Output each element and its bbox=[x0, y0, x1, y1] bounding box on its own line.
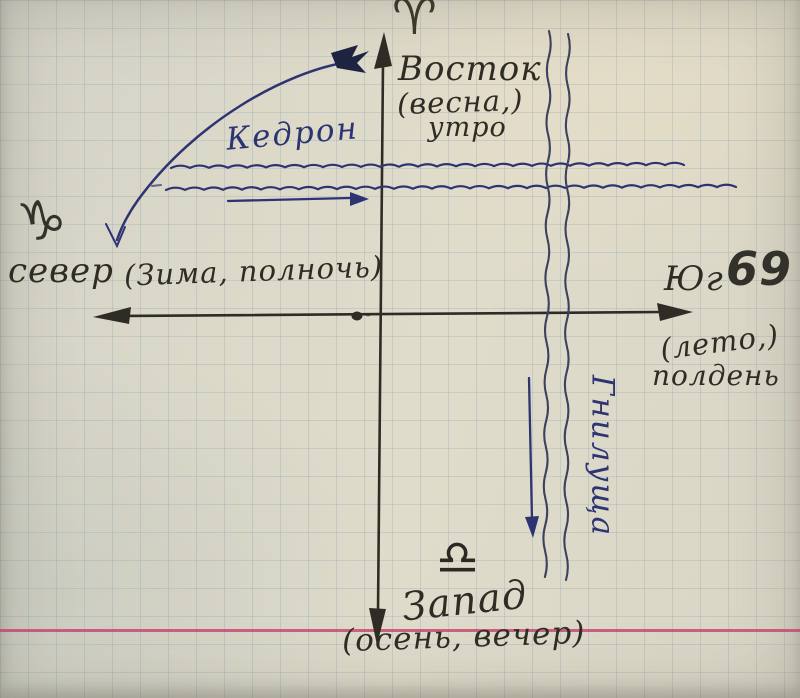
west-detail: (осень, вечер) bbox=[342, 618, 586, 657]
gnilushcha-river bbox=[525, 31, 570, 580]
cancer-symbol: 69 bbox=[726, 246, 792, 292]
east-label: Восток bbox=[398, 52, 542, 86]
north-detail: (Зима, полночь) bbox=[124, 252, 384, 290]
north-label: север bbox=[8, 254, 114, 288]
notebook-page: ♈ Восток (весна,) утро Кедрон ♑ север (З… bbox=[0, 0, 800, 698]
south-time: полдень bbox=[652, 362, 780, 390]
kedron-river bbox=[152, 163, 736, 206]
vertical-axis bbox=[369, 32, 392, 645]
gnilushcha-flow-arrow bbox=[529, 378, 532, 520]
libra-icon: ♎ bbox=[436, 534, 480, 582]
arrowhead-right-icon bbox=[657, 303, 693, 321]
kedron-river-line-2 bbox=[166, 185, 736, 190]
kedron-river-tick bbox=[152, 185, 161, 186]
aries-icon: ♈ bbox=[392, 0, 438, 42]
gnilushcha-flow-arrowhead-icon bbox=[525, 516, 539, 538]
axis-origin-dash bbox=[365, 314, 371, 317]
kedron-river-line-1 bbox=[171, 163, 684, 168]
arc-arrowhead-east-icon bbox=[331, 45, 369, 73]
arrowhead-up-icon bbox=[374, 32, 392, 69]
kedron-flow-arrow bbox=[228, 198, 350, 201]
gnilushcha-river-line-1 bbox=[543, 31, 550, 577]
east-time: утро bbox=[428, 114, 507, 141]
kedron-flow-arrowhead-icon bbox=[350, 192, 369, 206]
arrowhead-left-icon bbox=[93, 307, 131, 324]
south-label: Юг bbox=[664, 262, 724, 296]
horizontal-axis bbox=[93, 303, 693, 324]
gnilushcha-label: Гнилуща bbox=[587, 375, 618, 537]
capricorn-icon: ♑ bbox=[14, 191, 70, 251]
axis-origin-dot bbox=[352, 312, 363, 321]
gnilushcha-river-line-2 bbox=[564, 34, 569, 580]
